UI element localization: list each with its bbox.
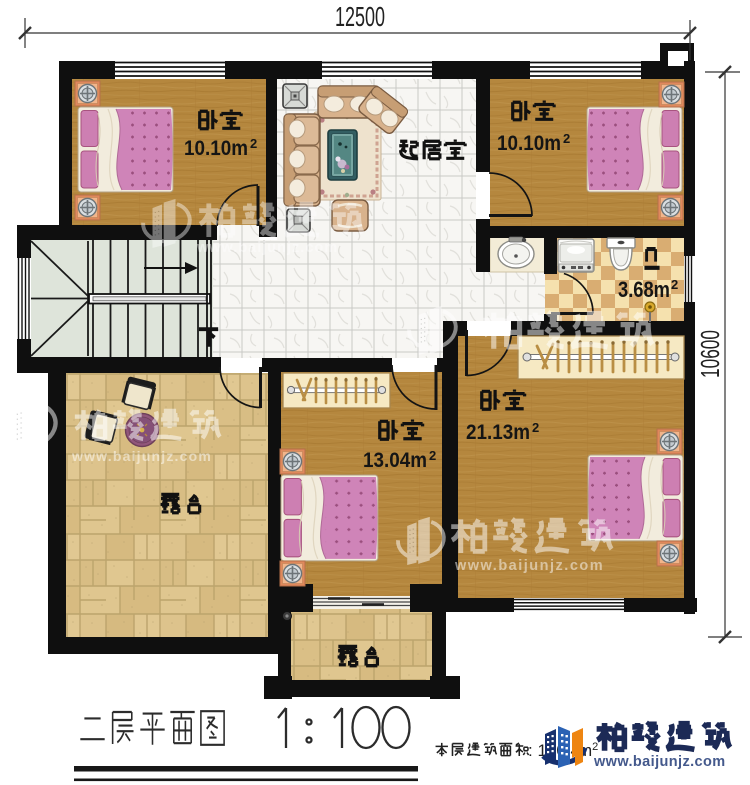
- svg-text:2: 2: [532, 420, 539, 435]
- svg-text:www.baijunjz.com: www.baijunjz.com: [593, 754, 726, 770]
- svg-text:2: 2: [563, 131, 570, 146]
- svg-text:12500: 12500: [335, 1, 385, 32]
- svg-text:www.baijunjz.com: www.baijunjz.com: [454, 558, 604, 574]
- svg-text:10600: 10600: [695, 330, 725, 378]
- svg-text:2: 2: [250, 136, 257, 151]
- svg-text:2: 2: [671, 277, 678, 292]
- svg-text:2: 2: [429, 448, 436, 463]
- svg-text:3.68m: 3.68m: [618, 277, 670, 302]
- svg-text:www.baijunjz.com: www.baijunjz.com: [196, 240, 338, 256]
- svg-text:www.baijunjz.com: www.baijunjz.com: [71, 448, 212, 464]
- svg-text:10.10m: 10.10m: [184, 137, 248, 160]
- svg-text:21.13m: 21.13m: [466, 421, 530, 444]
- svg-text:13.04m: 13.04m: [363, 449, 427, 472]
- svg-text:10.10m: 10.10m: [497, 132, 561, 155]
